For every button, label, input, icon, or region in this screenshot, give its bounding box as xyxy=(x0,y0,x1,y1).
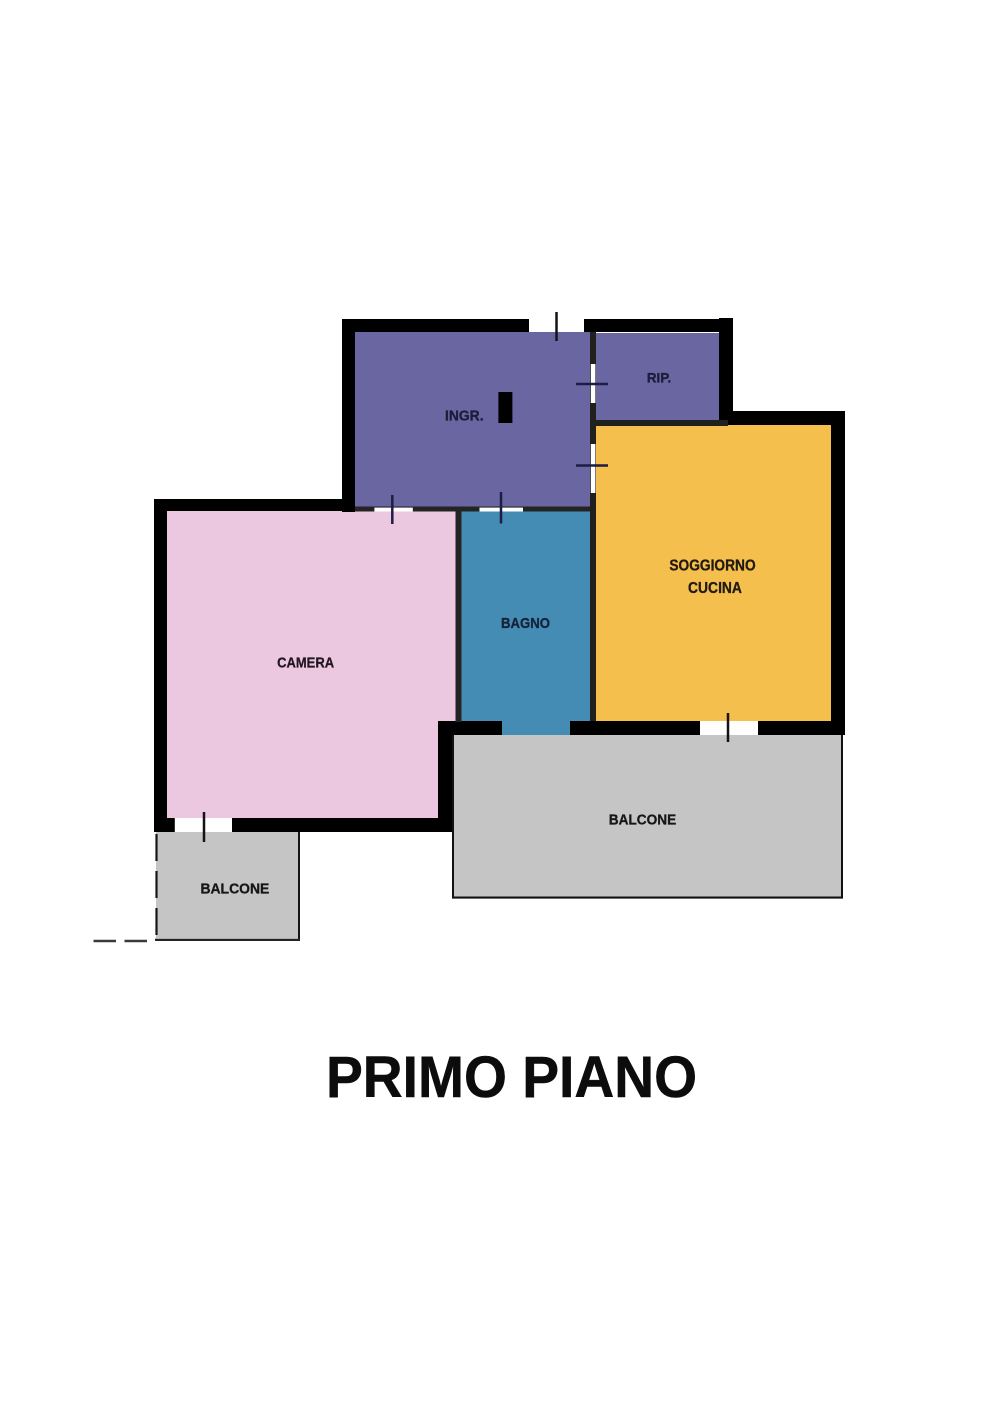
svg-text:CAMERA: CAMERA xyxy=(277,656,334,672)
svg-text:CUCINA: CUCINA xyxy=(688,580,742,597)
svg-text:BAGNO: BAGNO xyxy=(501,616,550,632)
svg-text:BALCONE: BALCONE xyxy=(609,813,677,829)
svg-text:BALCONE: BALCONE xyxy=(200,882,269,898)
svg-text:RIP.: RIP. xyxy=(647,369,672,385)
svg-text:PRIMO PIANO: PRIMO PIANO xyxy=(326,1045,697,1110)
svg-text:INGR.: INGR. xyxy=(445,409,484,425)
svg-text:SOGGIORNO: SOGGIORNO xyxy=(669,558,755,575)
